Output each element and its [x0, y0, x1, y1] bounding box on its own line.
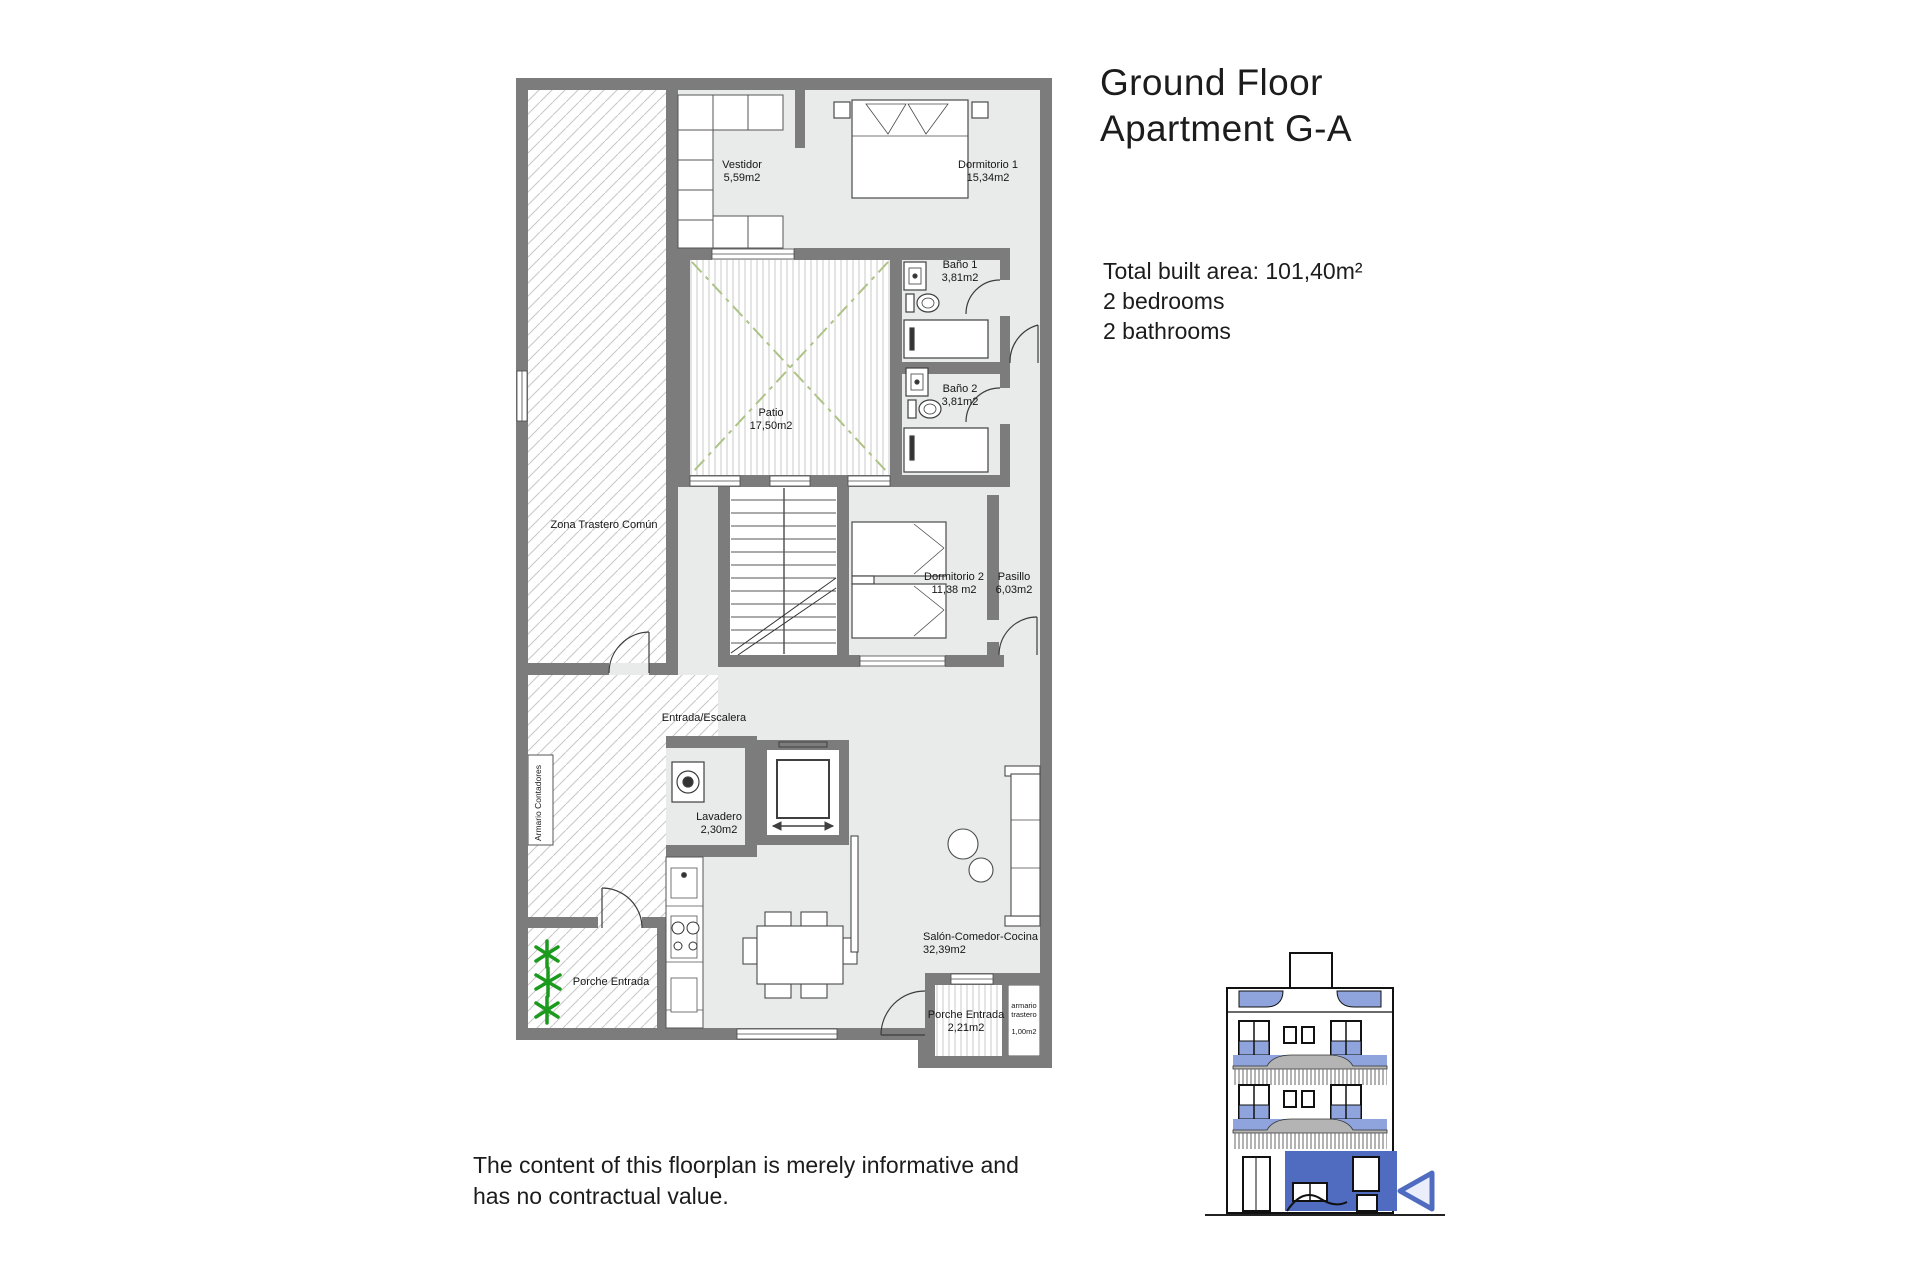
ground-floor-highlight [1243, 1151, 1397, 1211]
disclaimer-line1: The content of this floorplan is merely … [473, 1150, 1019, 1181]
floorplan-drawing: Vestidor 5,59m2 Dormitorio 1 15,34m2 Bañ… [514, 76, 1054, 1068]
room-label-vestidor: Vestidor [722, 159, 762, 171]
room-label-armario-trastero-2: trastero [1011, 1010, 1036, 1019]
room-label-armario-trastero-1: armario [1011, 1001, 1036, 1010]
page-title-line2: Apartment G-A [1100, 106, 1352, 152]
room-label-porche-entrada: Porche Entrada [928, 1009, 1005, 1021]
room-area-lavadero: 2,30m2 [701, 824, 738, 836]
room-label-bano1: Baño 1 [943, 259, 978, 271]
roof-tower [1290, 953, 1332, 988]
total-built-area: Total built area: 101,40m² [1103, 256, 1363, 286]
disclaimer: The content of this floorplan is merely … [473, 1150, 1019, 1212]
room-label-pasillo: Pasillo [998, 571, 1030, 583]
kitchen-counter-icon [666, 857, 703, 1028]
room-area-dormitorio2: 11,38 m2 [931, 584, 976, 596]
floorplan-page: Vestidor 5,59m2 Dormitorio 1 15,34m2 Bañ… [0, 0, 1920, 1280]
building-elevation-icon [1205, 945, 1445, 1230]
room-label-entrada: Entrada/Escalera [662, 712, 747, 724]
room-label-armario-contadores: Armario Contadores [533, 765, 543, 841]
room-label-zona-trastero: Zona Trastero Común [551, 519, 658, 531]
bedrooms-count: 2 bedrooms [1103, 286, 1363, 316]
page-title: Ground Floor Apartment G-A [1100, 60, 1352, 152]
room-area-salon: 32,39m2 [923, 944, 966, 956]
room-label-porche-izquierdo: Porche Entrada [573, 976, 650, 988]
room-label-dormitorio1: Dormitorio 1 [958, 159, 1018, 171]
building-facade [1205, 953, 1445, 1215]
washing-machine-icon [672, 762, 704, 802]
disclaimer-line2: has no contractual value. [473, 1181, 1019, 1212]
room-area-vestidor: 5,59m2 [724, 172, 761, 184]
room-area-bano2: 3,81m2 [942, 396, 979, 408]
double-bed-icon [834, 100, 988, 198]
summary-block: Total built area: 101,40m² 2 bedrooms 2 … [1103, 256, 1363, 346]
room-area-patio: 17,50m2 [750, 420, 793, 432]
bathrooms-count: 2 bathrooms [1103, 316, 1363, 346]
view-direction-arrow-icon [1400, 1173, 1432, 1209]
room-area-pasillo: 6,03m2 [996, 584, 1033, 596]
room-area-porche-entrada: 2,21m2 [948, 1022, 985, 1034]
room-area-armario-trastero: 1,00m2 [1011, 1027, 1036, 1036]
room-label-patio: Patio [758, 407, 783, 419]
page-title-line1: Ground Floor [1100, 60, 1352, 106]
room-label-bano2: Baño 2 [943, 383, 978, 395]
room-area-dormitorio1: 15,34m2 [967, 172, 1010, 184]
room-label-dormitorio2: Dormitorio 2 [924, 571, 984, 583]
room-label-lavadero: Lavadero [696, 811, 742, 823]
room-label-salon: Salón-Comedor-Cocina [923, 931, 1039, 943]
room-area-bano1: 3,81m2 [942, 272, 979, 284]
armario-trastero-area [1008, 985, 1040, 1056]
